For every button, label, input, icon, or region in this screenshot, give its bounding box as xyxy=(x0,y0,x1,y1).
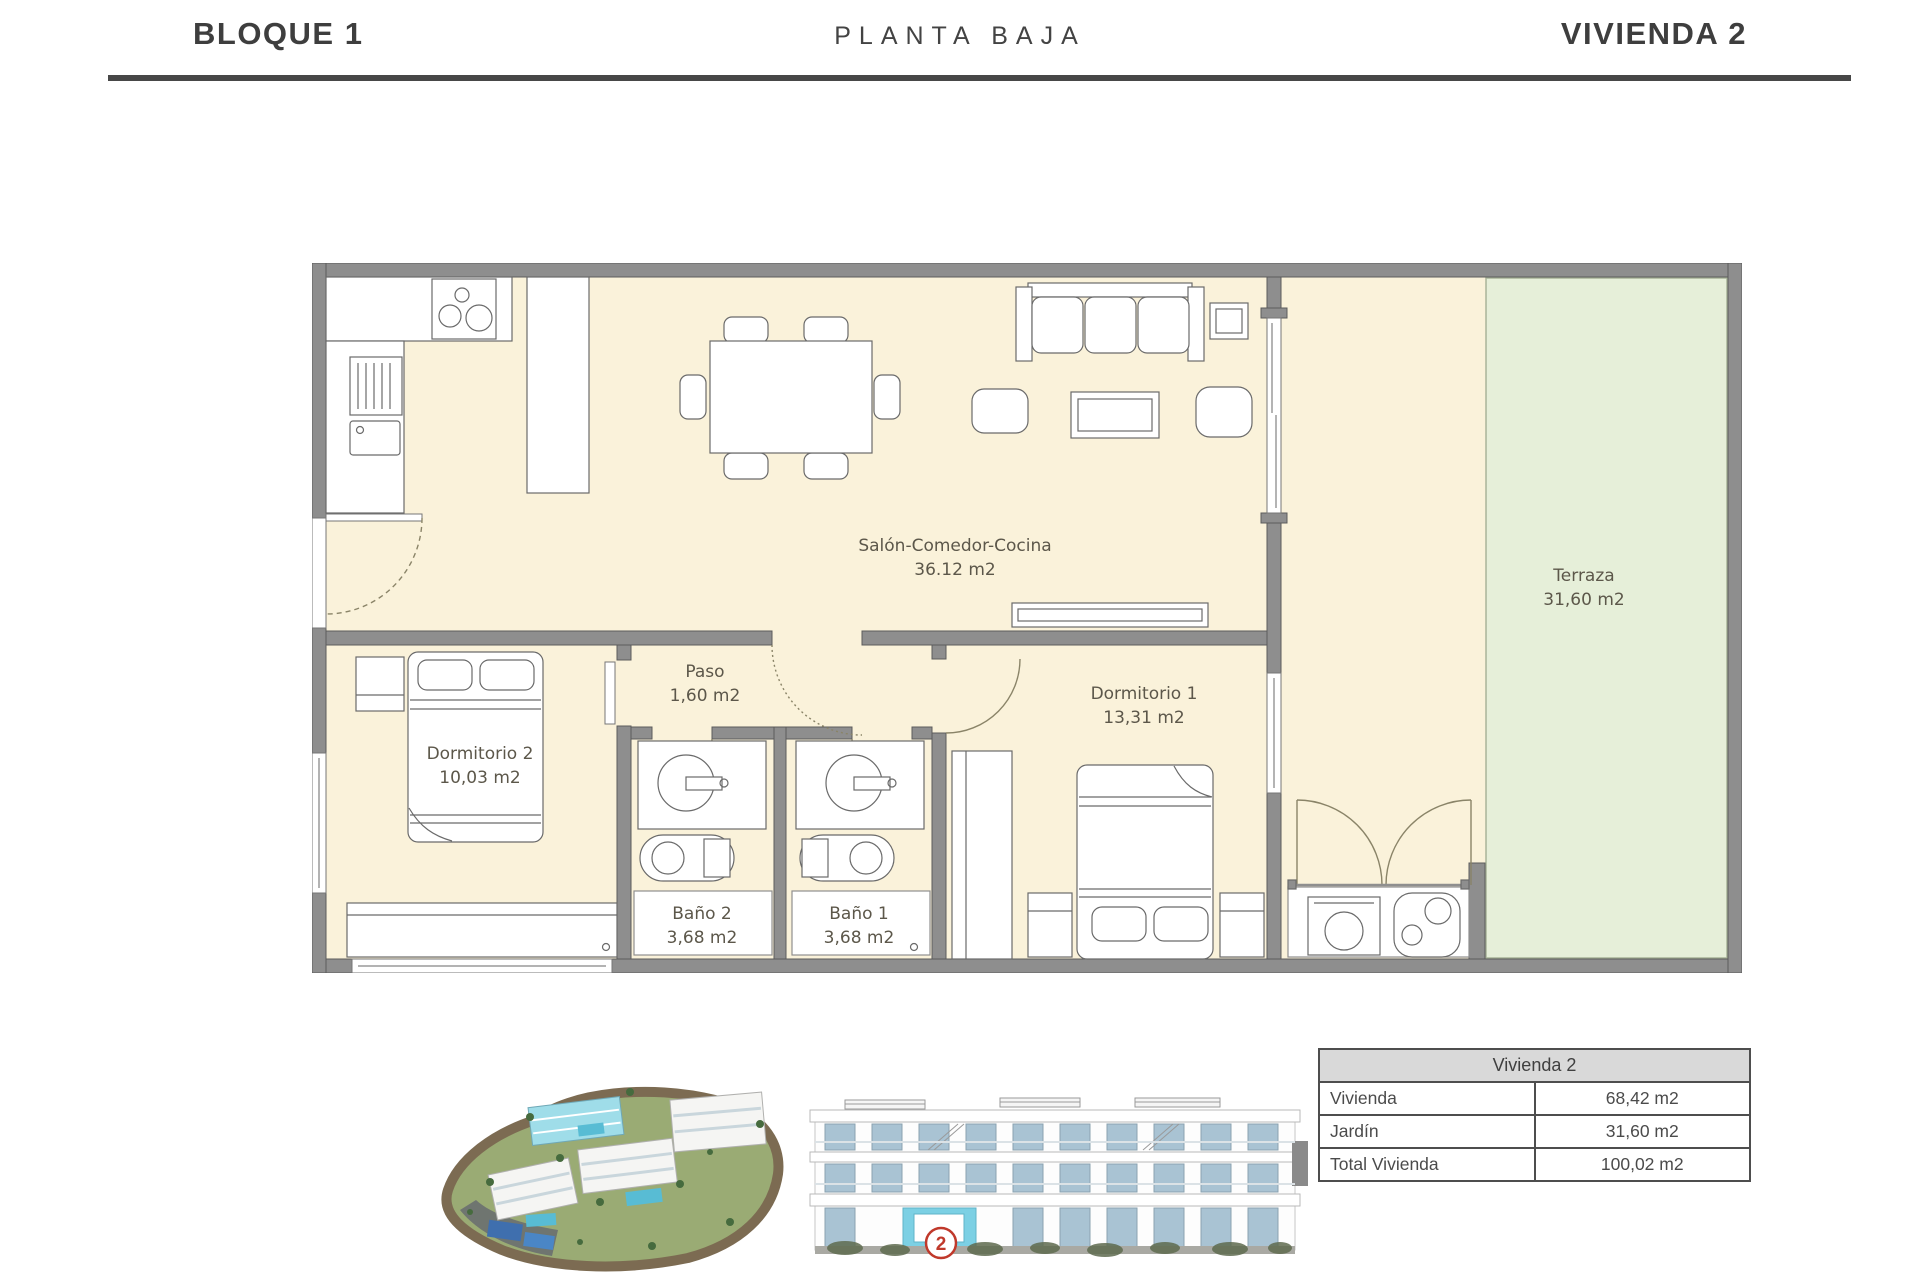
row-label: Jardín xyxy=(1319,1115,1535,1148)
unit-badge-number: 2 xyxy=(936,1234,947,1255)
floor-slab xyxy=(810,1152,1300,1162)
floor-slab xyxy=(810,1194,1300,1206)
floor-plan-sheet: BLOQUE 1 PLANTA BAJA VIVIENDA 2 xyxy=(0,0,1920,1280)
wardrobe-dormitorio1 xyxy=(952,751,1012,959)
table-row: Total Vivienda 100,02 m2 xyxy=(1319,1148,1750,1181)
washing-machine-icon xyxy=(1308,897,1380,955)
summary-table: Vivienda 2 Vivienda 68,42 m2 Jardín 31,6… xyxy=(1318,1048,1751,1182)
laundry-closet xyxy=(1288,880,1469,957)
table-row: Jardín 31,60 m2 xyxy=(1319,1115,1750,1148)
terraza-garden-area xyxy=(1486,278,1727,958)
room-area-dormitorio1: 13,31 m2 xyxy=(1103,708,1184,728)
room-area-dormitorio2: 10,03 m2 xyxy=(439,768,520,788)
entry-door-leaf xyxy=(326,514,422,521)
wardrobe-dormitorio2 xyxy=(347,903,617,957)
pouf-left xyxy=(972,389,1028,433)
room-label-bano2: Baño 2 xyxy=(672,904,731,924)
room-area-bano1: 3,68 m2 xyxy=(824,928,895,948)
roof-pergolas xyxy=(845,1098,1220,1109)
kitchen-island xyxy=(527,277,589,493)
nightstand xyxy=(1220,893,1264,957)
room-label-dormitorio2: Dormitorio 2 xyxy=(427,744,534,764)
building-elevation: 2 xyxy=(800,1096,1310,1274)
sofa-back xyxy=(1028,283,1192,297)
room-label-salon: Salón-Comedor-Cocina xyxy=(858,536,1051,556)
water-heater-icon xyxy=(1394,893,1460,957)
row-value: 31,60 m2 xyxy=(1535,1115,1751,1148)
room-label-bano1: Baño 1 xyxy=(829,904,888,924)
pouf-right xyxy=(1196,387,1252,437)
row-label: Total Vivienda xyxy=(1319,1148,1535,1181)
row-value: 100,02 m2 xyxy=(1535,1148,1751,1181)
floor-title: PLANTA BAJA xyxy=(834,22,1086,51)
row-value: 68,42 m2 xyxy=(1535,1082,1751,1115)
nightstand xyxy=(1028,893,1072,957)
block-title: BLOQUE 1 xyxy=(193,16,363,52)
room-area-terraza: 31,60 m2 xyxy=(1543,590,1624,610)
nightstand xyxy=(356,657,404,711)
unit-title: VIVIENDA 2 xyxy=(1561,16,1747,52)
dormitorio2-door-leaf xyxy=(605,662,615,724)
row-label: Vivienda xyxy=(1319,1082,1535,1115)
unit-2-badge: 2 xyxy=(926,1228,956,1258)
room-label-terraza: Terraza xyxy=(1552,566,1614,586)
floor-plan: Salón-Comedor-Cocina 36.12 m2 Paso 1,60 … xyxy=(312,263,1742,973)
summary-table-title: Vivienda 2 xyxy=(1319,1049,1750,1082)
room-area-salon: 36.12 m2 xyxy=(914,560,995,580)
aerial-render xyxy=(430,1062,795,1277)
header-rule xyxy=(108,75,1851,81)
side-structure xyxy=(1292,1141,1308,1186)
sink-icon xyxy=(350,421,400,455)
roof-slab xyxy=(810,1110,1300,1122)
room-area-bano2: 3,68 m2 xyxy=(667,928,738,948)
dining-table xyxy=(710,341,872,453)
room-label-dormitorio1: Dormitorio 1 xyxy=(1091,684,1198,704)
room-label-paso: Paso xyxy=(685,662,724,682)
room-area-paso: 1,60 m2 xyxy=(670,686,741,706)
table-row: Vivienda 68,42 m2 xyxy=(1319,1082,1750,1115)
